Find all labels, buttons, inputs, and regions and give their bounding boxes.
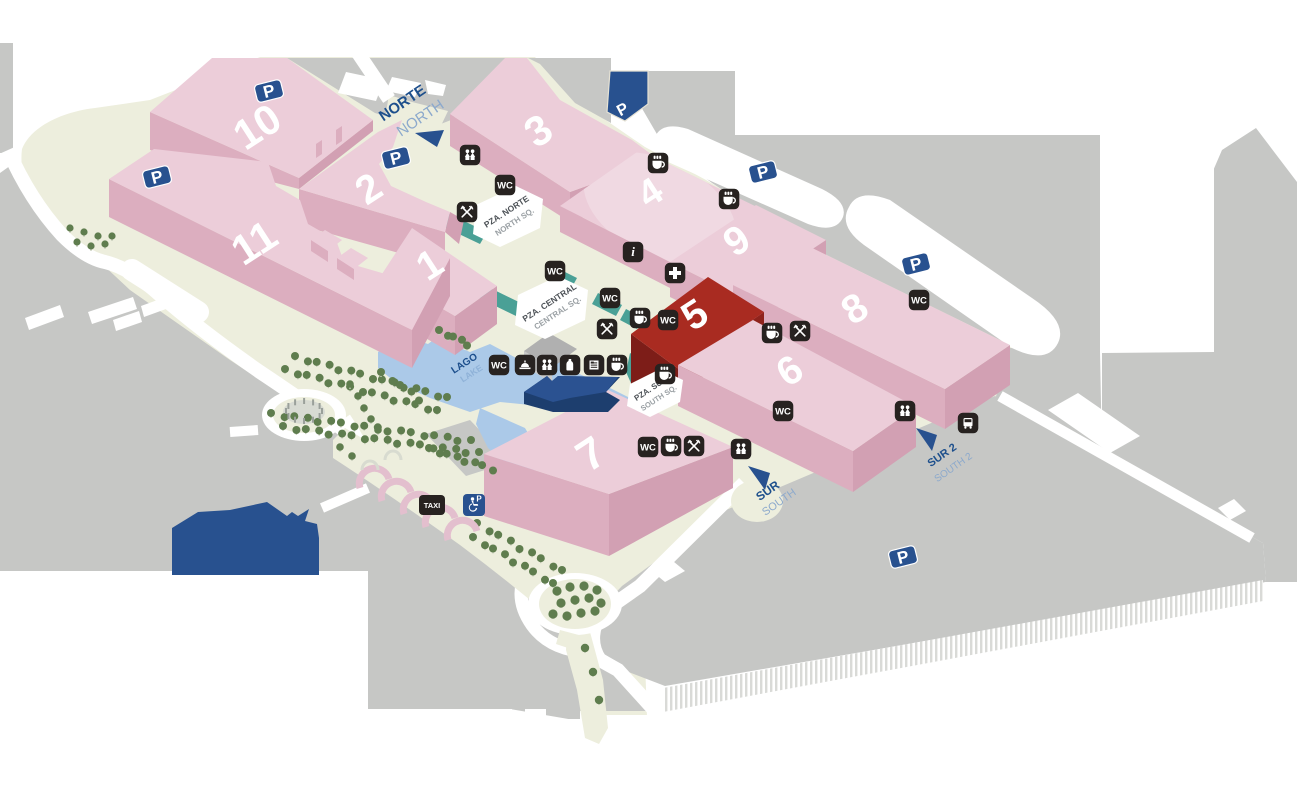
svg-text:WC: WC (640, 443, 656, 454)
svg-text:WC: WC (660, 316, 676, 327)
svg-text:WC: WC (547, 267, 563, 278)
svg-text:WC: WC (491, 361, 507, 372)
svg-text:i: i (631, 244, 635, 259)
svg-text:WC: WC (775, 407, 791, 418)
svg-text:WC: WC (497, 181, 513, 192)
svg-text:P: P (476, 495, 482, 504)
svg-text:WC: WC (911, 296, 927, 307)
svg-text:TAXI: TAXI (424, 501, 441, 510)
svg-text:WC: WC (602, 294, 618, 305)
